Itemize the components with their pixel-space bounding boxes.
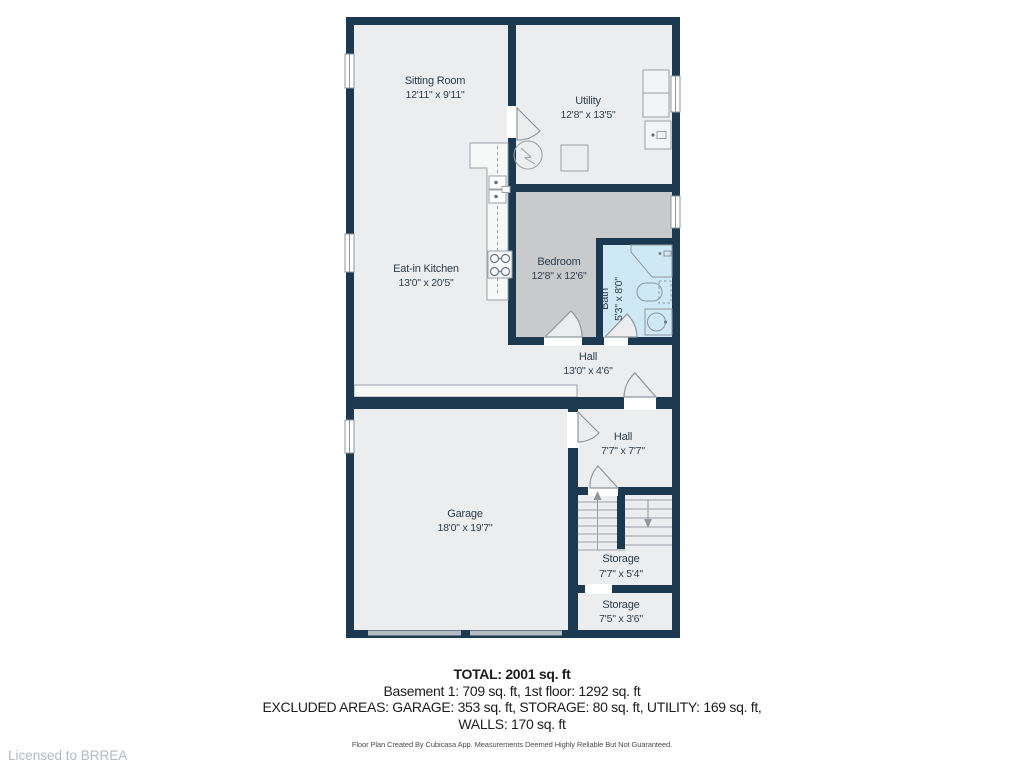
window-garage bbox=[345, 420, 354, 453]
stove-icon bbox=[488, 251, 512, 278]
kitchen-label: Eat-in Kitchen bbox=[393, 263, 459, 275]
floor-plan-page: Sitting Room 12'11" x 9'11" Utility 12'8… bbox=[0, 0, 1024, 768]
hall-upper-dims: 13'0" x 4'6" bbox=[563, 365, 613, 377]
disclaimer-line: Floor Plan Created By Cubicasa App. Meas… bbox=[0, 740, 1024, 750]
hall-lower-dims: 7'7" x 7'7" bbox=[601, 445, 645, 457]
window-sitting bbox=[345, 54, 354, 88]
wall-utility-bedroom bbox=[508, 184, 680, 192]
wall-kitchen-divider bbox=[508, 17, 516, 345]
wall-storage-divider bbox=[568, 585, 680, 593]
half-wall-band bbox=[354, 385, 577, 397]
bath-dims: 5'3" x 8'0" bbox=[613, 277, 625, 321]
window-utility bbox=[671, 76, 680, 112]
wall-bedroom-hall bbox=[508, 337, 680, 345]
opening-storage-bottom bbox=[585, 584, 612, 594]
floor-plan-canvas: Sitting Room 12'11" x 9'11" Utility 12'8… bbox=[0, 0, 1024, 768]
sitting-room-label: Sitting Room bbox=[405, 75, 466, 87]
bedroom-label: Bedroom bbox=[537, 256, 580, 268]
opening-garage-hall bbox=[567, 412, 579, 448]
garage-dims: 18'0" x 19'7" bbox=[438, 522, 493, 534]
utility-dims: 12'8" x 13'5" bbox=[561, 109, 616, 121]
storage-bottom-dims: 7'5" x 3'6" bbox=[599, 613, 643, 625]
hall-upper-label: Hall bbox=[579, 351, 597, 363]
excluded-area-line: EXCLUDED AREAS: GARAGE: 353 sq. ft, STOR… bbox=[0, 699, 1024, 716]
bedroom-dims: 12'8" x 12'6" bbox=[532, 270, 587, 282]
storage-stairs-label: Storage bbox=[602, 553, 639, 565]
opening-hall-upper bbox=[624, 396, 656, 410]
hall-lower-label: Hall bbox=[614, 431, 632, 443]
wall-bath-top bbox=[596, 238, 672, 245]
wall-stairs-center bbox=[617, 495, 625, 549]
window-bedroom bbox=[671, 196, 680, 228]
walls-area-line: WALLS: 170 sq. ft bbox=[0, 716, 1024, 733]
garage-door-right bbox=[470, 631, 562, 636]
kitchen-dims: 13'0" x 20'5" bbox=[399, 277, 454, 289]
wall-left bbox=[346, 17, 354, 638]
window-kitchen bbox=[345, 234, 354, 272]
license-watermark: Licensed to BRREA bbox=[8, 748, 127, 763]
bath-label: Bath bbox=[599, 288, 611, 310]
area-summary: TOTAL: 2001 sq. ft Basement 1: 709 sq. f… bbox=[0, 666, 1024, 750]
garage-label: Garage bbox=[447, 508, 483, 520]
sitting-room-dims: 12'11" x 9'11" bbox=[405, 89, 465, 101]
opening-sitting-utility bbox=[507, 106, 517, 138]
utility-label: Utility bbox=[575, 95, 601, 107]
garage-door-left bbox=[368, 631, 461, 636]
floors-area-line: Basement 1: 709 sq. ft, 1st floor: 1292 … bbox=[0, 683, 1024, 700]
total-area-line: TOTAL: 2001 sq. ft bbox=[0, 666, 1024, 683]
washer-dryer-icon bbox=[643, 70, 669, 117]
storage-stairs-dims: 7'7" x 5'4" bbox=[599, 568, 643, 580]
laundry-appliance-icon bbox=[645, 121, 671, 149]
storage-bottom-label: Storage bbox=[602, 599, 639, 611]
